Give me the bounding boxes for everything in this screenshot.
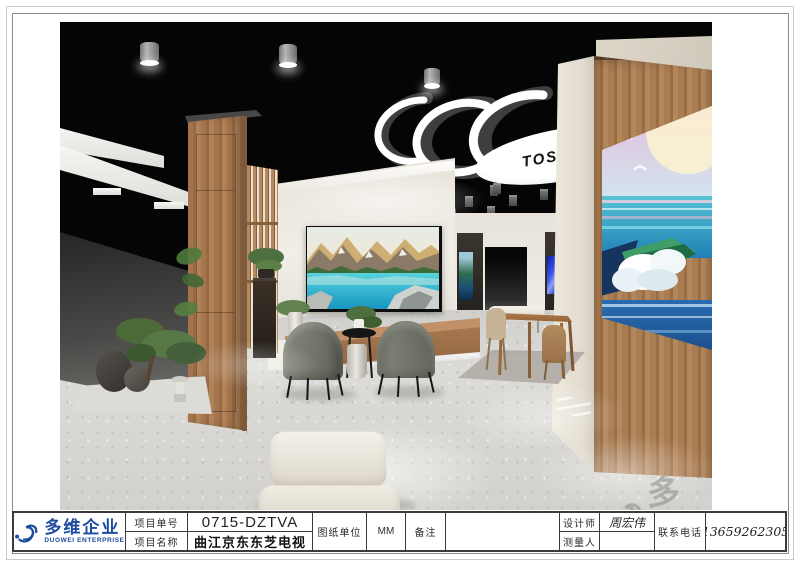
surveyor-value <box>599 531 654 550</box>
watermark-text: 多维 <box>647 466 712 510</box>
ceiling-cube-light <box>465 196 473 207</box>
ottoman-cushion-back <box>269 432 387 488</box>
unit-value: MM <box>366 513 405 550</box>
watermark: 多维 <box>608 466 712 510</box>
pedestal-vase-body <box>347 344 367 379</box>
armchair-right <box>377 321 435 378</box>
surveyor-label-text: 测量人 <box>563 534 596 549</box>
partition-edge <box>242 116 247 431</box>
designer-text: 周宏伟 <box>609 514 645 531</box>
phone-text: 13659262305 <box>705 524 785 539</box>
downlight-cylinder <box>279 44 297 66</box>
company-logo: 多维企业 DUOWEI ENTERPRISE <box>14 519 124 545</box>
bench-leg <box>537 320 539 333</box>
company-logo-icon <box>14 520 40 544</box>
project-name-value: 曲江京东东芝电视 <box>187 531 312 550</box>
plant-stand <box>253 278 276 358</box>
dining-chair-left <box>486 308 506 340</box>
display-tv-left <box>459 252 473 300</box>
project-no-label-text: 项目单号 <box>135 515 179 530</box>
phone-label-text: 联系电话 <box>658 524 702 539</box>
dining-chair-right <box>542 325 566 363</box>
surveyor-label: 测量人 <box>559 531 599 550</box>
designer-value: 周宏伟 <box>599 513 654 531</box>
watermark-logo-icon <box>608 496 645 510</box>
company-name-cn: 多维企业 <box>44 519 124 536</box>
phone-label: 联系电话 <box>654 513 705 550</box>
downlight-cylinder <box>424 68 440 87</box>
remark-label-text: 备注 <box>415 524 437 539</box>
phone-value: 13659262305 <box>705 513 785 550</box>
pine-canopy <box>166 342 206 364</box>
lantern-base <box>174 394 186 402</box>
title-block: 多维企业 DUOWEI ENTERPRISE 项目单号 项目名称 0715-DZ… <box>12 511 787 552</box>
unit-label: 图纸单位 <box>312 513 366 550</box>
project-name-label-text: 项目名称 <box>135 534 179 549</box>
partition-rail <box>196 312 234 313</box>
ceiling-cube-light <box>540 189 548 200</box>
bonsai-pot <box>258 269 274 278</box>
remark-value <box>445 513 559 550</box>
company-name-en: DUOWEI ENTERPRISE <box>44 538 124 545</box>
partition-molding <box>196 134 236 412</box>
partition-rail <box>196 190 234 191</box>
chair-shadow <box>282 388 356 401</box>
doorway-opening <box>485 247 527 310</box>
unit-text: MM <box>378 526 395 537</box>
project-no-label: 项目单号 <box>125 513 187 531</box>
stone-lantern <box>172 370 188 404</box>
unit-label-text: 图纸单位 <box>318 524 362 539</box>
remark-label: 备注 <box>405 513 445 550</box>
main-tv <box>306 226 442 312</box>
project-name-label: 项目名称 <box>125 531 187 550</box>
showroom-render: TOSHIBA <box>60 22 712 510</box>
armchair-left <box>283 322 343 380</box>
title-logo-cell: 多维企业 DUOWEI ENTERPRISE <box>14 513 125 550</box>
project-no-text: 0715-DZTVA <box>202 514 298 531</box>
project-no-value: 0715-DZTVA <box>187 513 312 531</box>
table-leg <box>528 322 531 378</box>
slat-rail <box>247 222 278 225</box>
designer-label-text: 设计师 <box>563 515 596 530</box>
downlight-cylinder <box>140 42 159 64</box>
ceiling-cube-light <box>509 195 517 206</box>
ceiling-cube-light <box>493 183 501 194</box>
designer-label: 设计师 <box>559 513 599 531</box>
project-name-text: 曲江京东东芝电视 <box>194 532 306 551</box>
ottoman-cushion-front <box>257 486 402 510</box>
drawing-sheet: TOSHIBA <box>0 0 800 566</box>
side-table-top <box>342 328 376 338</box>
main-tv-screen <box>307 227 439 309</box>
lantern-body <box>176 382 184 394</box>
